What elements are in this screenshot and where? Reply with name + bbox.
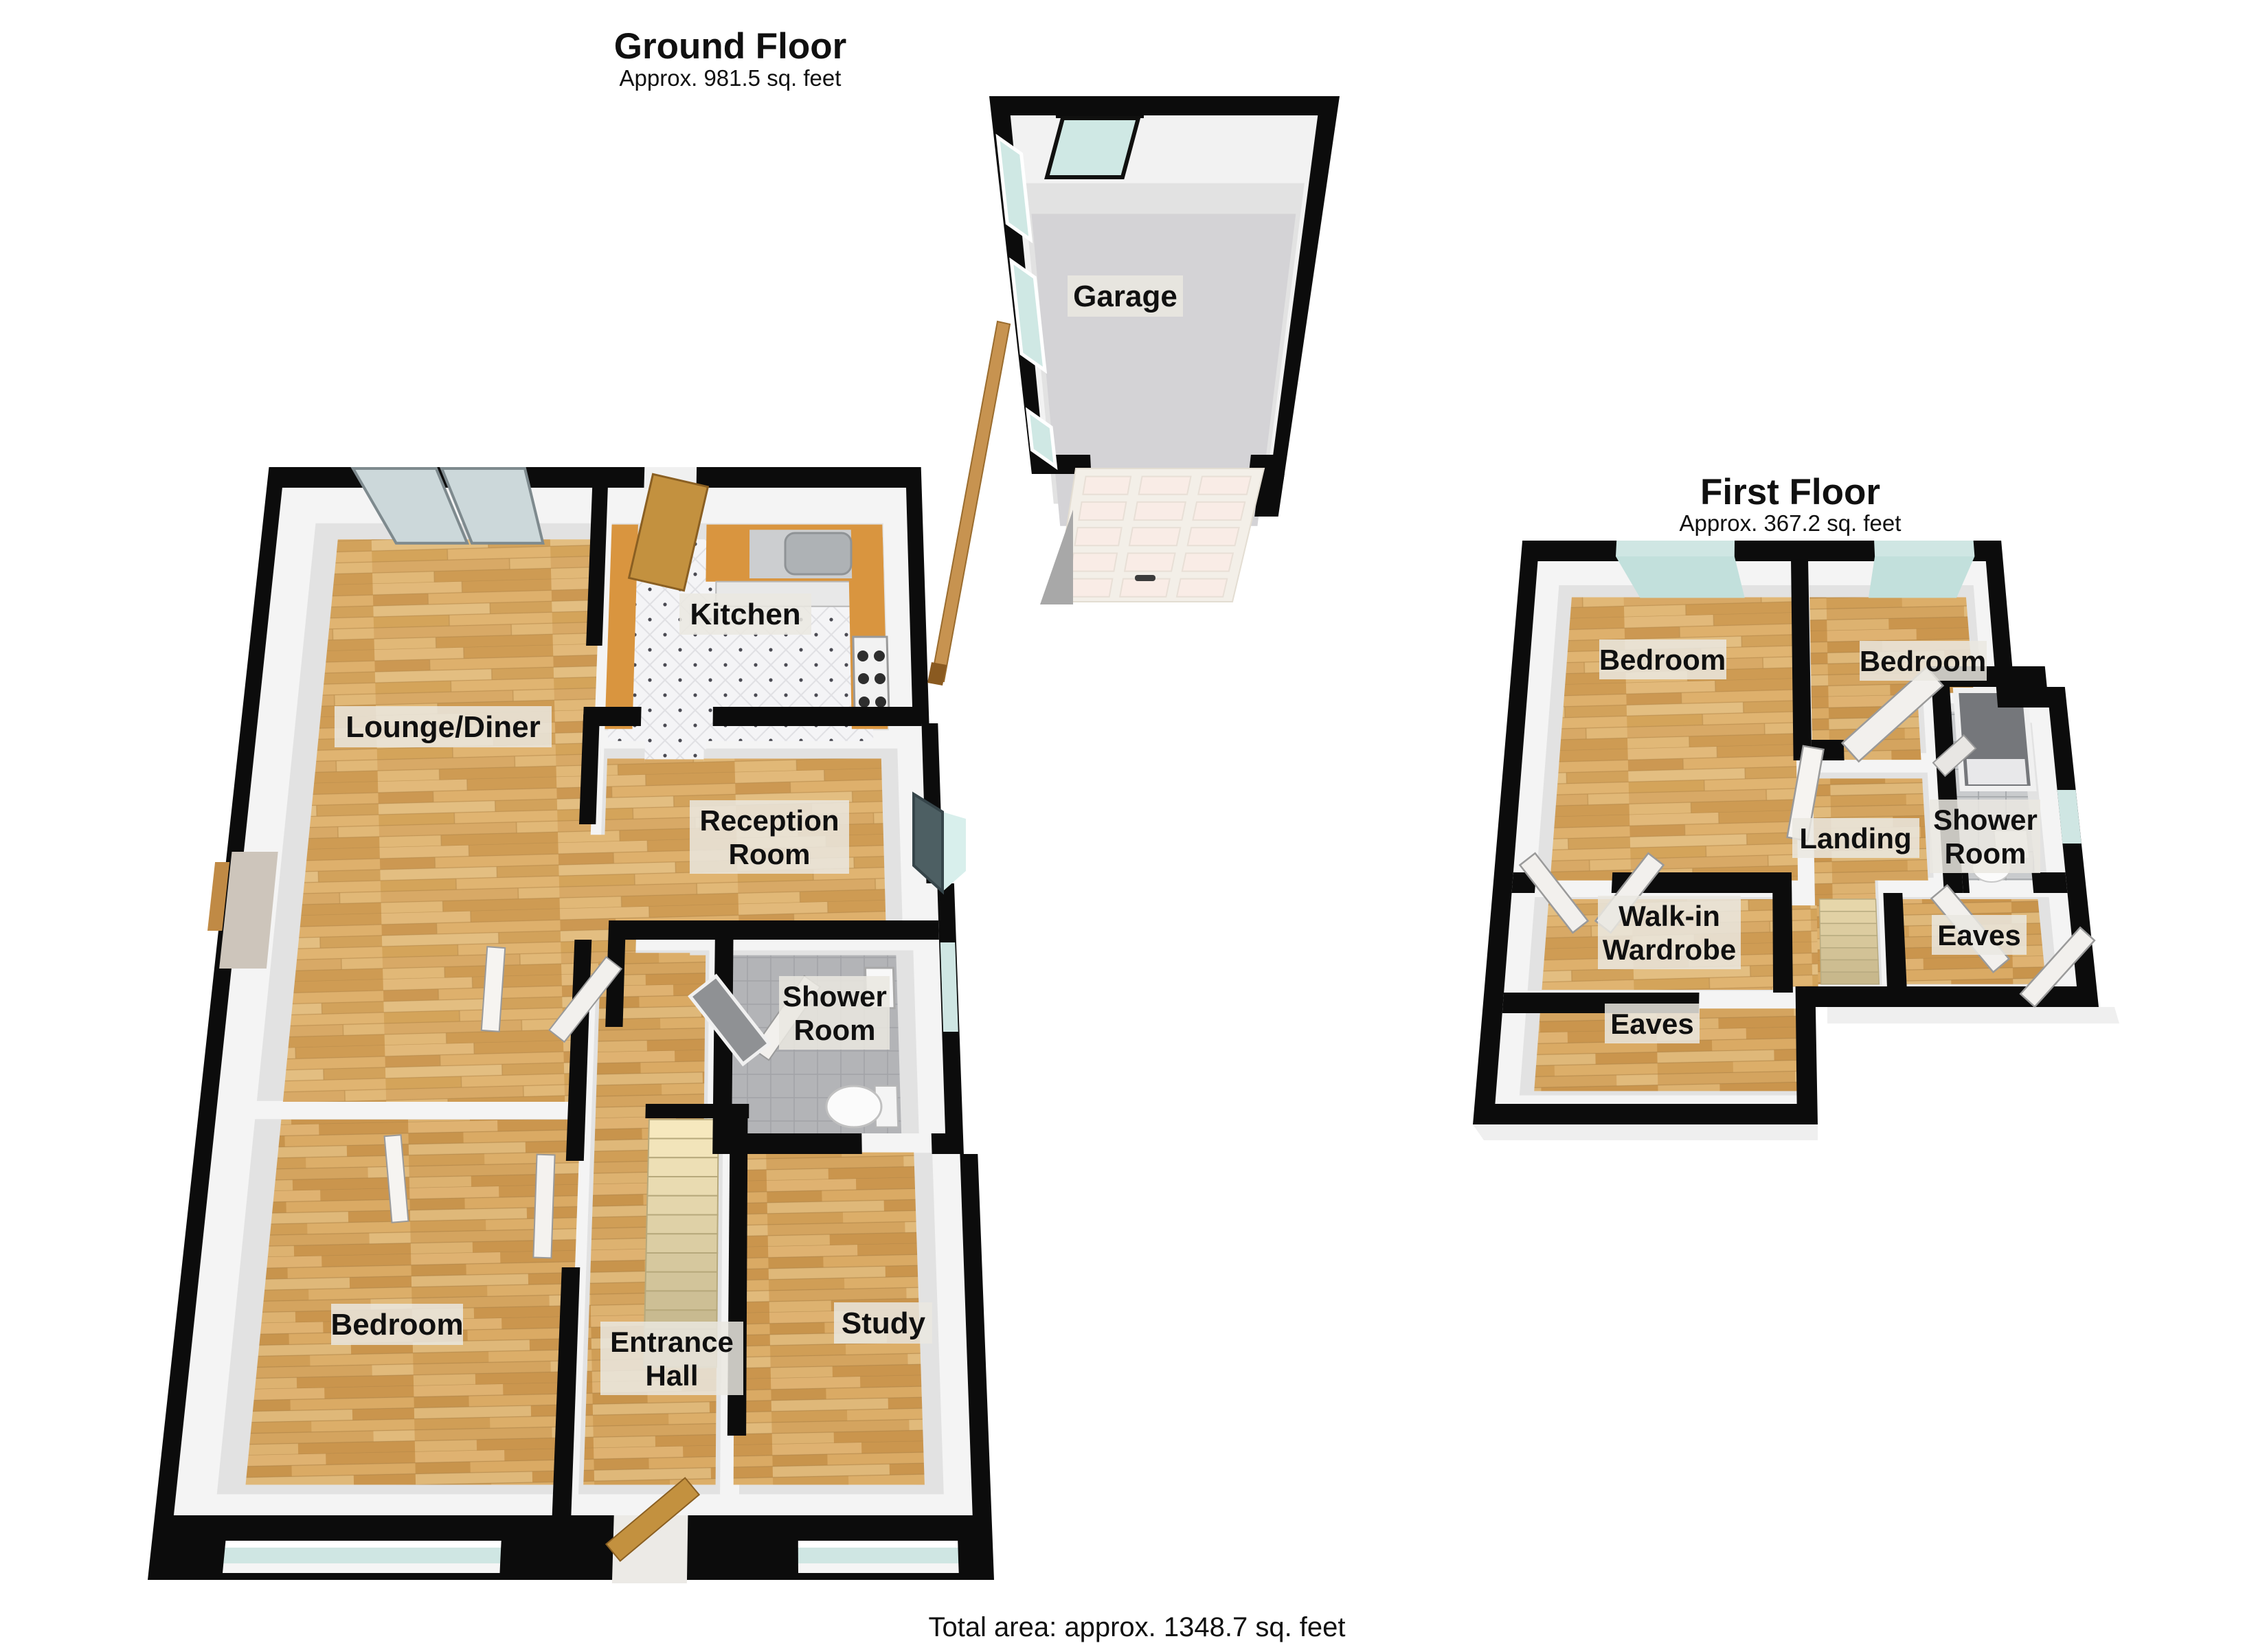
- svg-text:Wardrobe: Wardrobe: [1603, 934, 1736, 966]
- svg-text:Study: Study: [842, 1306, 926, 1340]
- svg-text:Bedroom: Bedroom: [1599, 644, 1726, 676]
- svg-text:Room: Room: [729, 838, 811, 870]
- svg-text:Shower: Shower: [782, 980, 887, 1012]
- svg-text:Eaves: Eaves: [1610, 1008, 1693, 1040]
- svg-text:Garage: Garage: [1073, 280, 1177, 313]
- svg-text:Walk-in: Walk-in: [1619, 900, 1720, 932]
- svg-text:Eaves: Eaves: [1937, 919, 2020, 951]
- svg-text:Reception: Reception: [699, 804, 839, 837]
- svg-text:Kitchen: Kitchen: [690, 598, 800, 631]
- svg-text:Bedroom: Bedroom: [1860, 645, 1986, 677]
- svg-text:Landing: Landing: [1799, 822, 1911, 855]
- svg-text:Total area: approx. 1348.7 sq.: Total area: approx. 1348.7 sq. feet: [928, 1612, 1345, 1642]
- svg-text:Bedroom: Bedroom: [330, 1308, 463, 1342]
- svg-text:Ground Floor: Ground Floor: [614, 26, 847, 67]
- svg-text:First Floor: First Floor: [1700, 472, 1880, 512]
- svg-text:Hall: Hall: [645, 1359, 698, 1392]
- svg-text:Approx. 981.5 sq. feet: Approx. 981.5 sq. feet: [620, 65, 842, 91]
- svg-text:Lounge/Diner: Lounge/Diner: [346, 710, 541, 744]
- svg-text:Approx. 367.2 sq. feet: Approx. 367.2 sq. feet: [1680, 510, 1902, 536]
- svg-text:Room: Room: [794, 1014, 876, 1046]
- svg-text:Entrance: Entrance: [610, 1326, 734, 1358]
- svg-text:Room: Room: [1945, 837, 2027, 870]
- svg-text:Shower: Shower: [1933, 804, 2038, 836]
